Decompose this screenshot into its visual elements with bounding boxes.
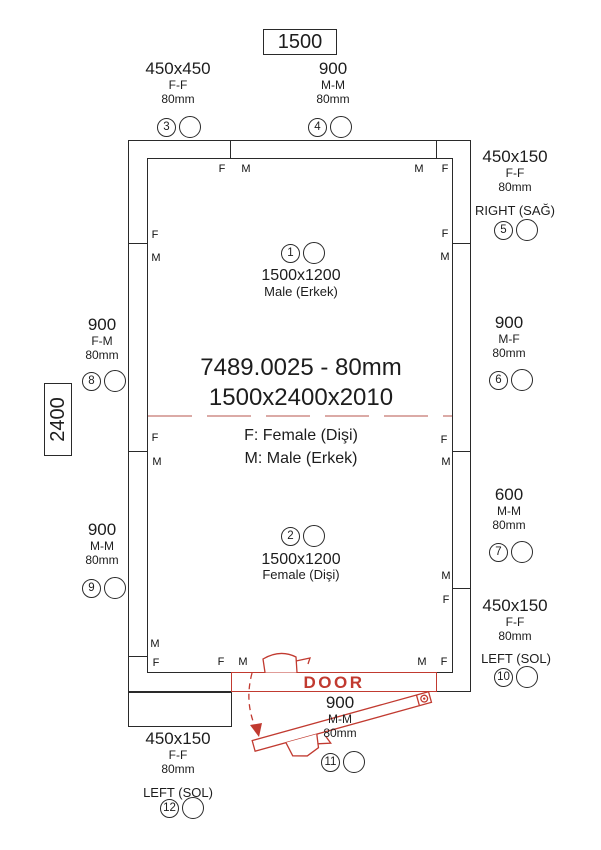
panel-size: 900 [492, 313, 525, 333]
room-inner-wall [147, 158, 453, 673]
panel-joint: F-F [145, 749, 210, 763]
floor-panel-size: 1500x1200 [261, 551, 340, 568]
panel-orientation-5: RIGHT (SAĞ) [475, 204, 555, 218]
width-dimension-box: 1500 [263, 29, 337, 55]
panel-label-3: 450x450 F-F 80mm [145, 59, 210, 106]
wall-edge-label: M [441, 570, 450, 582]
panel-label-8: 900 F-M 80mm [85, 315, 118, 362]
panel-marker-4: 4 [308, 116, 352, 138]
joint-tick-left-1 [128, 243, 147, 244]
panel-label-9: 900 M-M 80mm [85, 520, 118, 567]
empty-check-circle [516, 666, 538, 688]
wall-edge-label: M [417, 656, 426, 668]
empty-check-circle [516, 219, 538, 241]
panel-thickness: 80mm [85, 349, 118, 363]
panel-number: 4 [308, 118, 327, 137]
corner-panel-extension [128, 692, 232, 727]
panel-size: 450x450 [145, 59, 210, 79]
panel-joint: M-M [316, 79, 349, 93]
panel-number: 10 [494, 668, 513, 687]
empty-check-circle [104, 370, 126, 392]
panel-label-11: 900 M-M 80mm [323, 693, 356, 740]
panel-size: 450x150 [482, 147, 547, 167]
wall-edge-label: M [152, 456, 161, 468]
door-hinge-icon [420, 694, 428, 702]
legend-female: F: Female (Dişi) [244, 427, 358, 445]
width-dimension: 1500 [278, 31, 323, 54]
panel-thickness: 80mm [85, 554, 118, 568]
panel-marker-2: 2 [281, 525, 325, 547]
wall-edge-label: F [441, 656, 448, 668]
panel-thickness: 80mm [482, 181, 547, 195]
wall-edge-label: M [150, 638, 159, 650]
height-dimension: 2400 [47, 397, 70, 442]
panel-marker-5: 5 [494, 219, 538, 241]
ceiling-panel-size: 1500x1200 [261, 267, 340, 284]
empty-check-circle [104, 577, 126, 599]
panel-size: 600 [492, 485, 525, 505]
panel-number: 8 [82, 372, 101, 391]
panel-thickness: 80mm [145, 93, 210, 107]
panel-marker-7: 7 [489, 541, 533, 563]
door-label: DOOR [304, 674, 365, 691]
panel-number: 6 [489, 371, 508, 390]
panel-marker-8: 8 [82, 370, 126, 392]
product-code: 7489.0025 - 80mm [200, 354, 401, 381]
panel-orientation-12: LEFT (SOL) [143, 786, 213, 800]
door-wall-section: DOOR [231, 672, 437, 692]
panel-marker-9: 9 [82, 577, 126, 599]
ceiling-panel-type: Male (Erkek) [264, 285, 338, 299]
panel-label-7: 600 M-M 80mm [492, 485, 525, 532]
empty-check-circle [511, 541, 533, 563]
empty-check-circle [303, 525, 325, 547]
panel-label-4: 900 M-M 80mm [316, 59, 349, 106]
joint-tick-top-left [230, 140, 231, 158]
panel-number: 9 [82, 579, 101, 598]
wall-edge-label: M [441, 456, 450, 468]
panel-marker-12: 12 [160, 797, 204, 819]
panel-thickness: 80mm [323, 727, 356, 741]
floor-panel-type: Female (Dişi) [262, 568, 339, 582]
wall-edge-label: M [151, 252, 160, 264]
wall-edge-label: F [152, 229, 159, 241]
wall-edge-label: M [238, 656, 247, 668]
panel-joint: M-F [492, 333, 525, 347]
panel-size: 900 [323, 693, 356, 713]
panel-size: 450x150 [145, 729, 210, 749]
panel-label-10: 450x150 F-F 80mm [482, 596, 547, 643]
door-swing-arrowhead-icon [250, 723, 262, 737]
panel-number: 1 [281, 244, 300, 263]
panel-marker-1: 1 [281, 242, 325, 264]
wall-edge-label: M [241, 163, 250, 175]
panel-joint: M-M [323, 713, 356, 727]
panel-joint: M-M [492, 505, 525, 519]
wall-edge-label: F [219, 163, 226, 175]
panel-marker-3: 3 [157, 116, 201, 138]
empty-check-circle [343, 751, 365, 773]
joint-tick-left-3 [128, 656, 147, 657]
wall-edge-label: M [414, 163, 423, 175]
empty-check-circle [182, 797, 204, 819]
panel-joint: F-M [85, 335, 118, 349]
panel-label-5: 450x150 F-F 80mm [482, 147, 547, 194]
joint-tick-right-1 [453, 243, 471, 244]
legend-male: M: Male (Erkek) [245, 450, 358, 468]
wall-edge-label: F [153, 657, 160, 669]
panel-thickness: 80mm [492, 519, 525, 533]
panel-number: 7 [489, 543, 508, 562]
joint-tick-top-right [436, 140, 437, 158]
empty-check-circle [179, 116, 201, 138]
panel-number: 11 [321, 753, 340, 772]
panel-marker-6: 6 [489, 369, 533, 391]
door-handle-open-icon [286, 734, 322, 760]
panel-joint: M-M [85, 540, 118, 554]
empty-check-circle [511, 369, 533, 391]
wall-edge-label: F [441, 434, 448, 446]
panel-size: 900 [85, 315, 118, 335]
panel-thickness: 80mm [482, 630, 547, 644]
panel-joint: F-F [482, 616, 547, 630]
height-dimension-box: 2400 [44, 383, 72, 456]
joint-tick-right-2 [453, 451, 471, 452]
joint-tick-right-3 [453, 588, 471, 589]
room-dimensions: 1500x2400x2010 [209, 384, 393, 411]
panel-thickness: 80mm [492, 347, 525, 361]
wall-edge-label: F [218, 656, 225, 668]
panel-marker-11: 11 [321, 751, 365, 773]
panel-label-12: 450x150 F-F 80mm [145, 729, 210, 776]
wall-edge-label: F [152, 432, 159, 444]
panel-size: 900 [316, 59, 349, 79]
wall-edge-label: F [443, 594, 450, 606]
panel-marker-10: 10 [494, 666, 538, 688]
empty-check-circle [303, 242, 325, 264]
wall-edge-label: F [442, 228, 449, 240]
joint-tick-left-2 [128, 451, 147, 452]
panel-size: 450x150 [482, 596, 547, 616]
panel-number: 12 [160, 799, 179, 818]
panel-assembly-drawing: DOOR 1500 2400 450x450 F-F 80mm 900 M-M [0, 0, 601, 850]
panel-label-6: 900 M-F 80mm [492, 313, 525, 360]
panel-thickness: 80mm [316, 93, 349, 107]
wall-edge-label: F [442, 163, 449, 175]
panel-orientation-10: LEFT (SOL) [481, 652, 551, 666]
panel-thickness: 80mm [145, 763, 210, 777]
wall-edge-label: M [440, 251, 449, 263]
panel-joint: F-F [482, 167, 547, 181]
panel-number: 2 [281, 527, 300, 546]
panel-number: 5 [494, 221, 513, 240]
panel-number: 3 [157, 118, 176, 137]
panel-joint: F-F [145, 79, 210, 93]
empty-check-circle [330, 116, 352, 138]
panel-size: 900 [85, 520, 118, 540]
